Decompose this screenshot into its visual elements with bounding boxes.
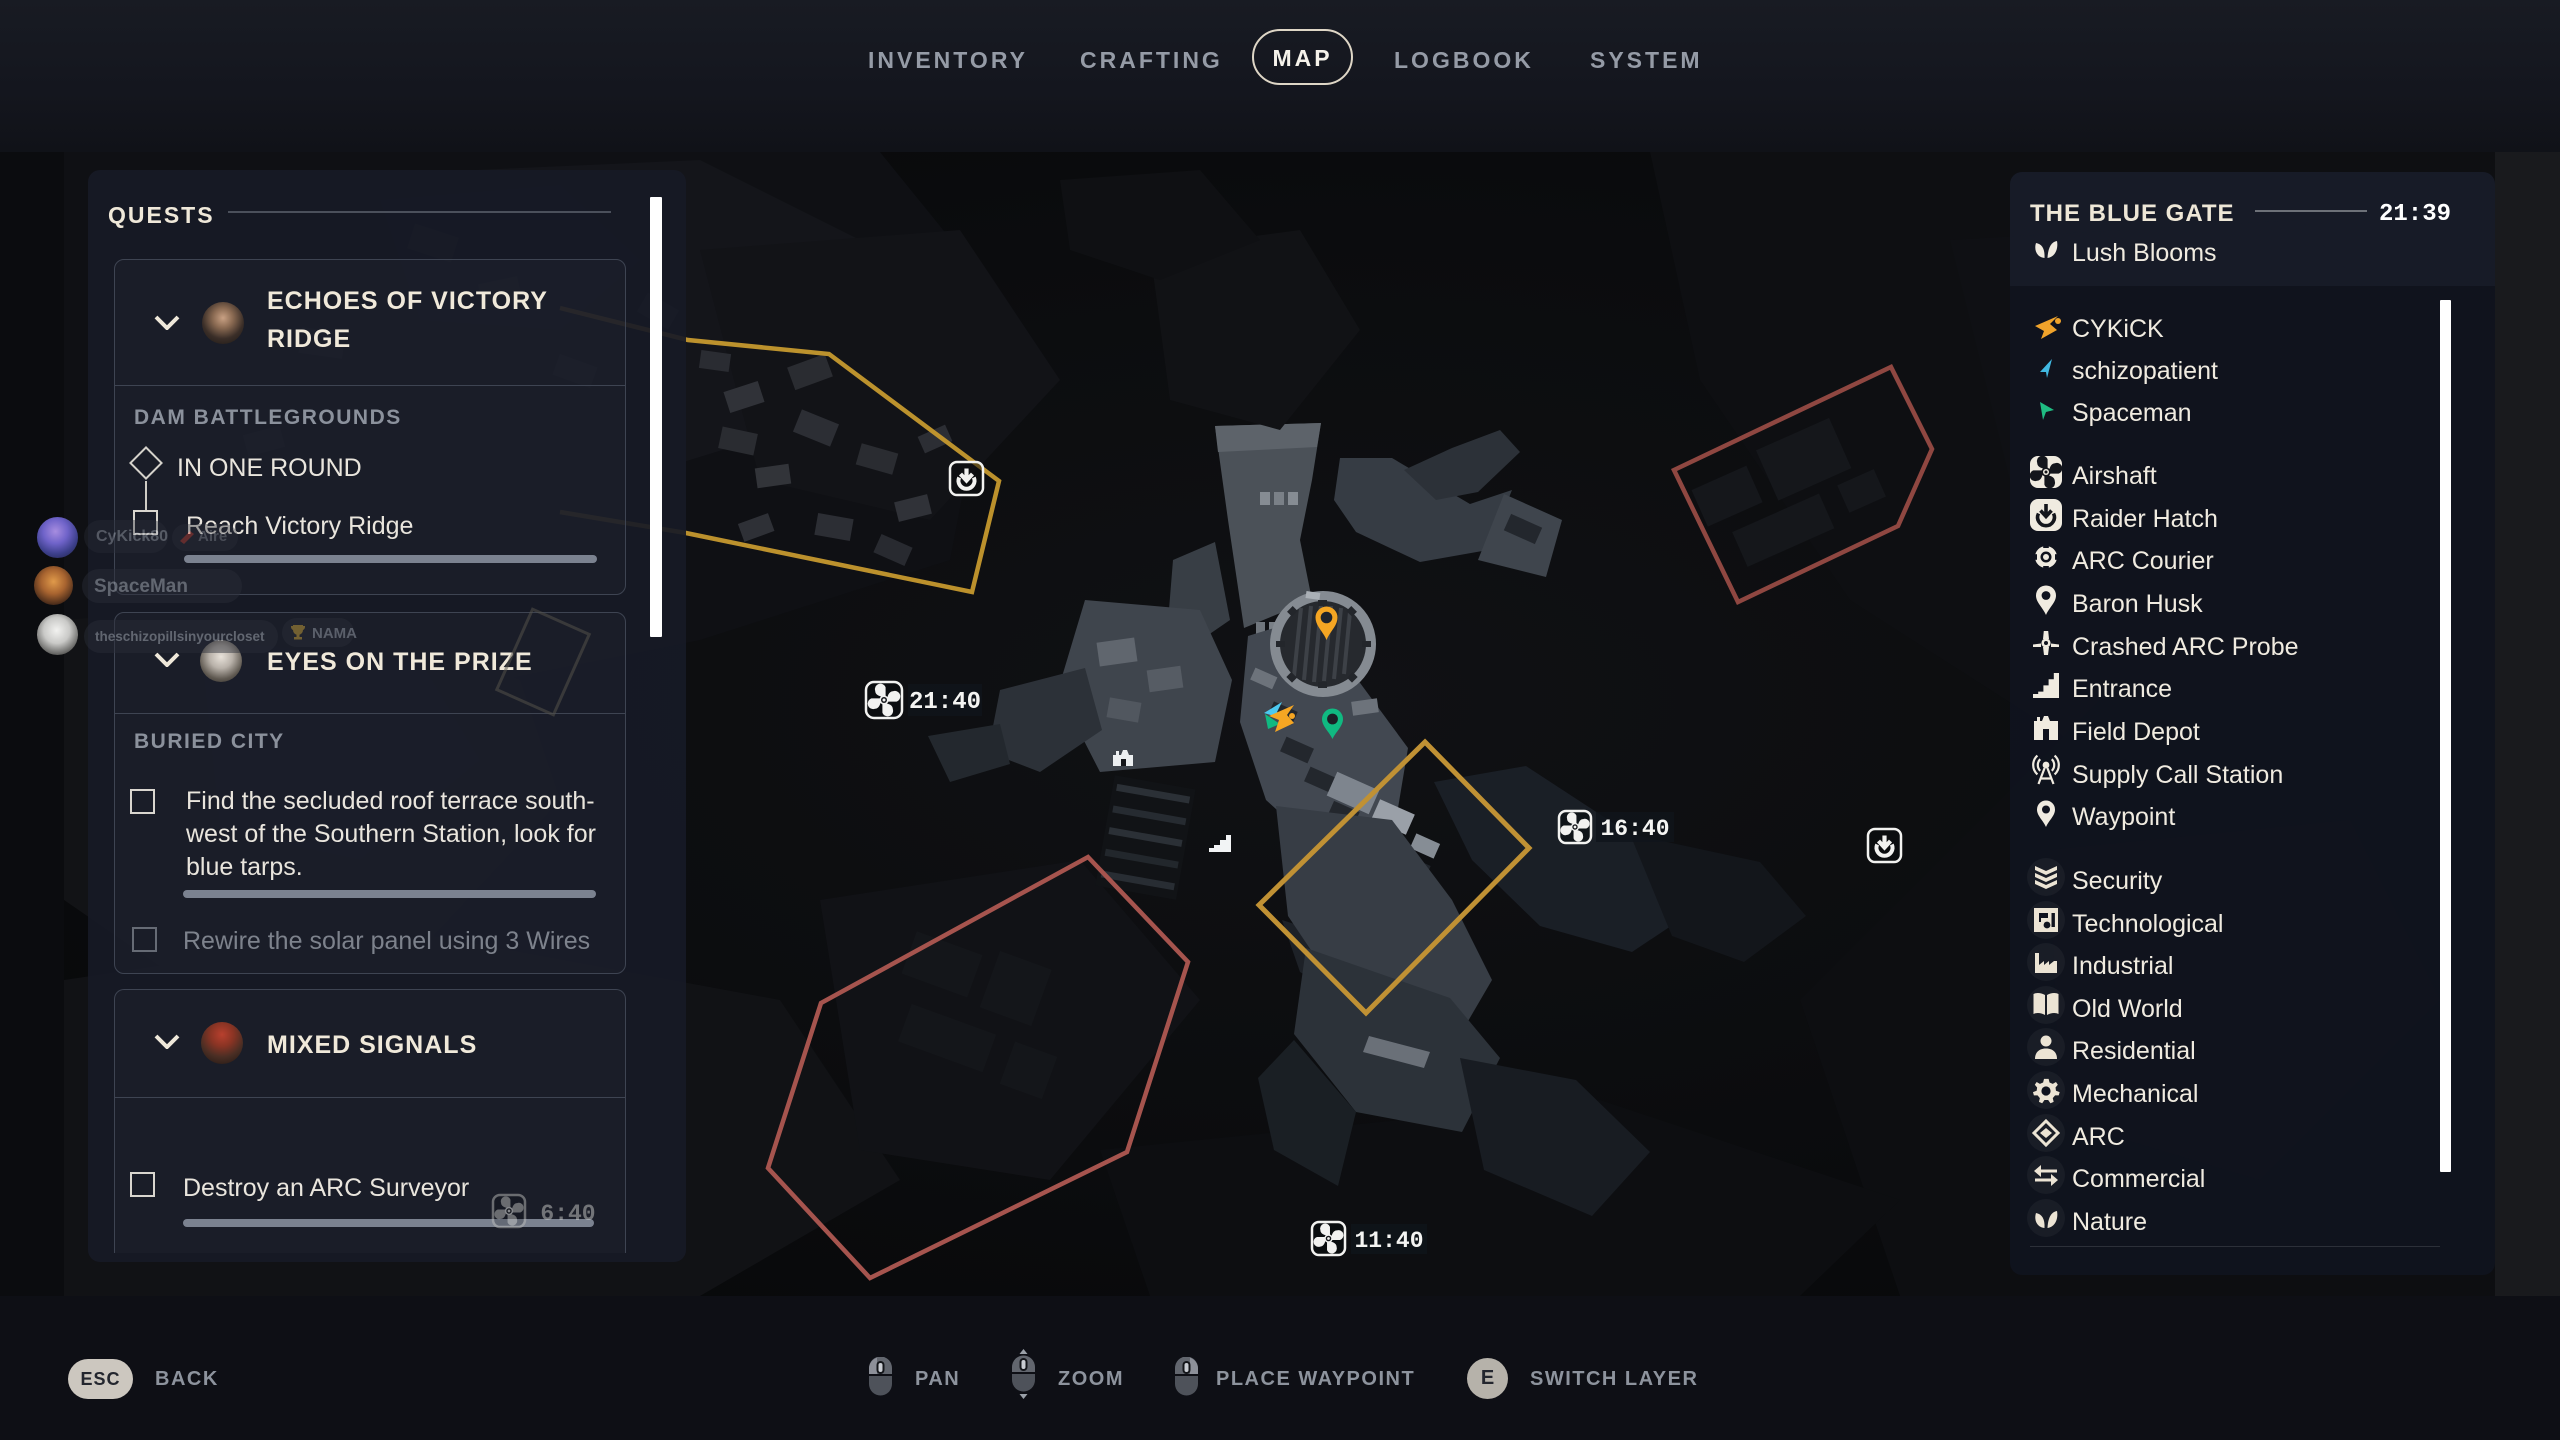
svg-text:11:40: 11:40 [1354,1228,1423,1254]
svg-text:21:40: 21:40 [909,689,981,716]
svg-text:6:40: 6:40 [540,1201,595,1227]
svg-text:16:40: 16:40 [1600,816,1669,842]
